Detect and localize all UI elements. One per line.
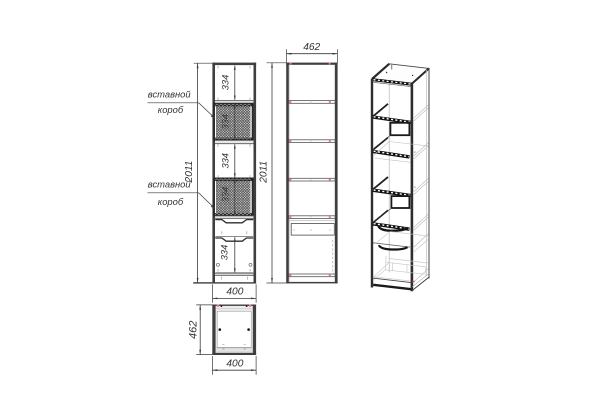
svg-text:вставной: вставной bbox=[148, 179, 192, 190]
svg-text:334: 334 bbox=[220, 245, 230, 261]
svg-text:334: 334 bbox=[221, 75, 231, 91]
svg-text:334: 334 bbox=[221, 114, 231, 130]
svg-text:короб: короб bbox=[158, 104, 184, 115]
svg-text:400: 400 bbox=[226, 359, 243, 370]
svg-text:462: 462 bbox=[187, 321, 199, 339]
svg-text:400: 400 bbox=[226, 286, 243, 297]
svg-text:короб: короб bbox=[158, 196, 184, 207]
svg-text:2011: 2011 bbox=[259, 161, 270, 184]
svg-text:334: 334 bbox=[221, 153, 231, 169]
svg-text:вставной: вставной bbox=[148, 89, 192, 100]
svg-text:334: 334 bbox=[221, 187, 231, 203]
svg-text:462: 462 bbox=[303, 42, 320, 53]
